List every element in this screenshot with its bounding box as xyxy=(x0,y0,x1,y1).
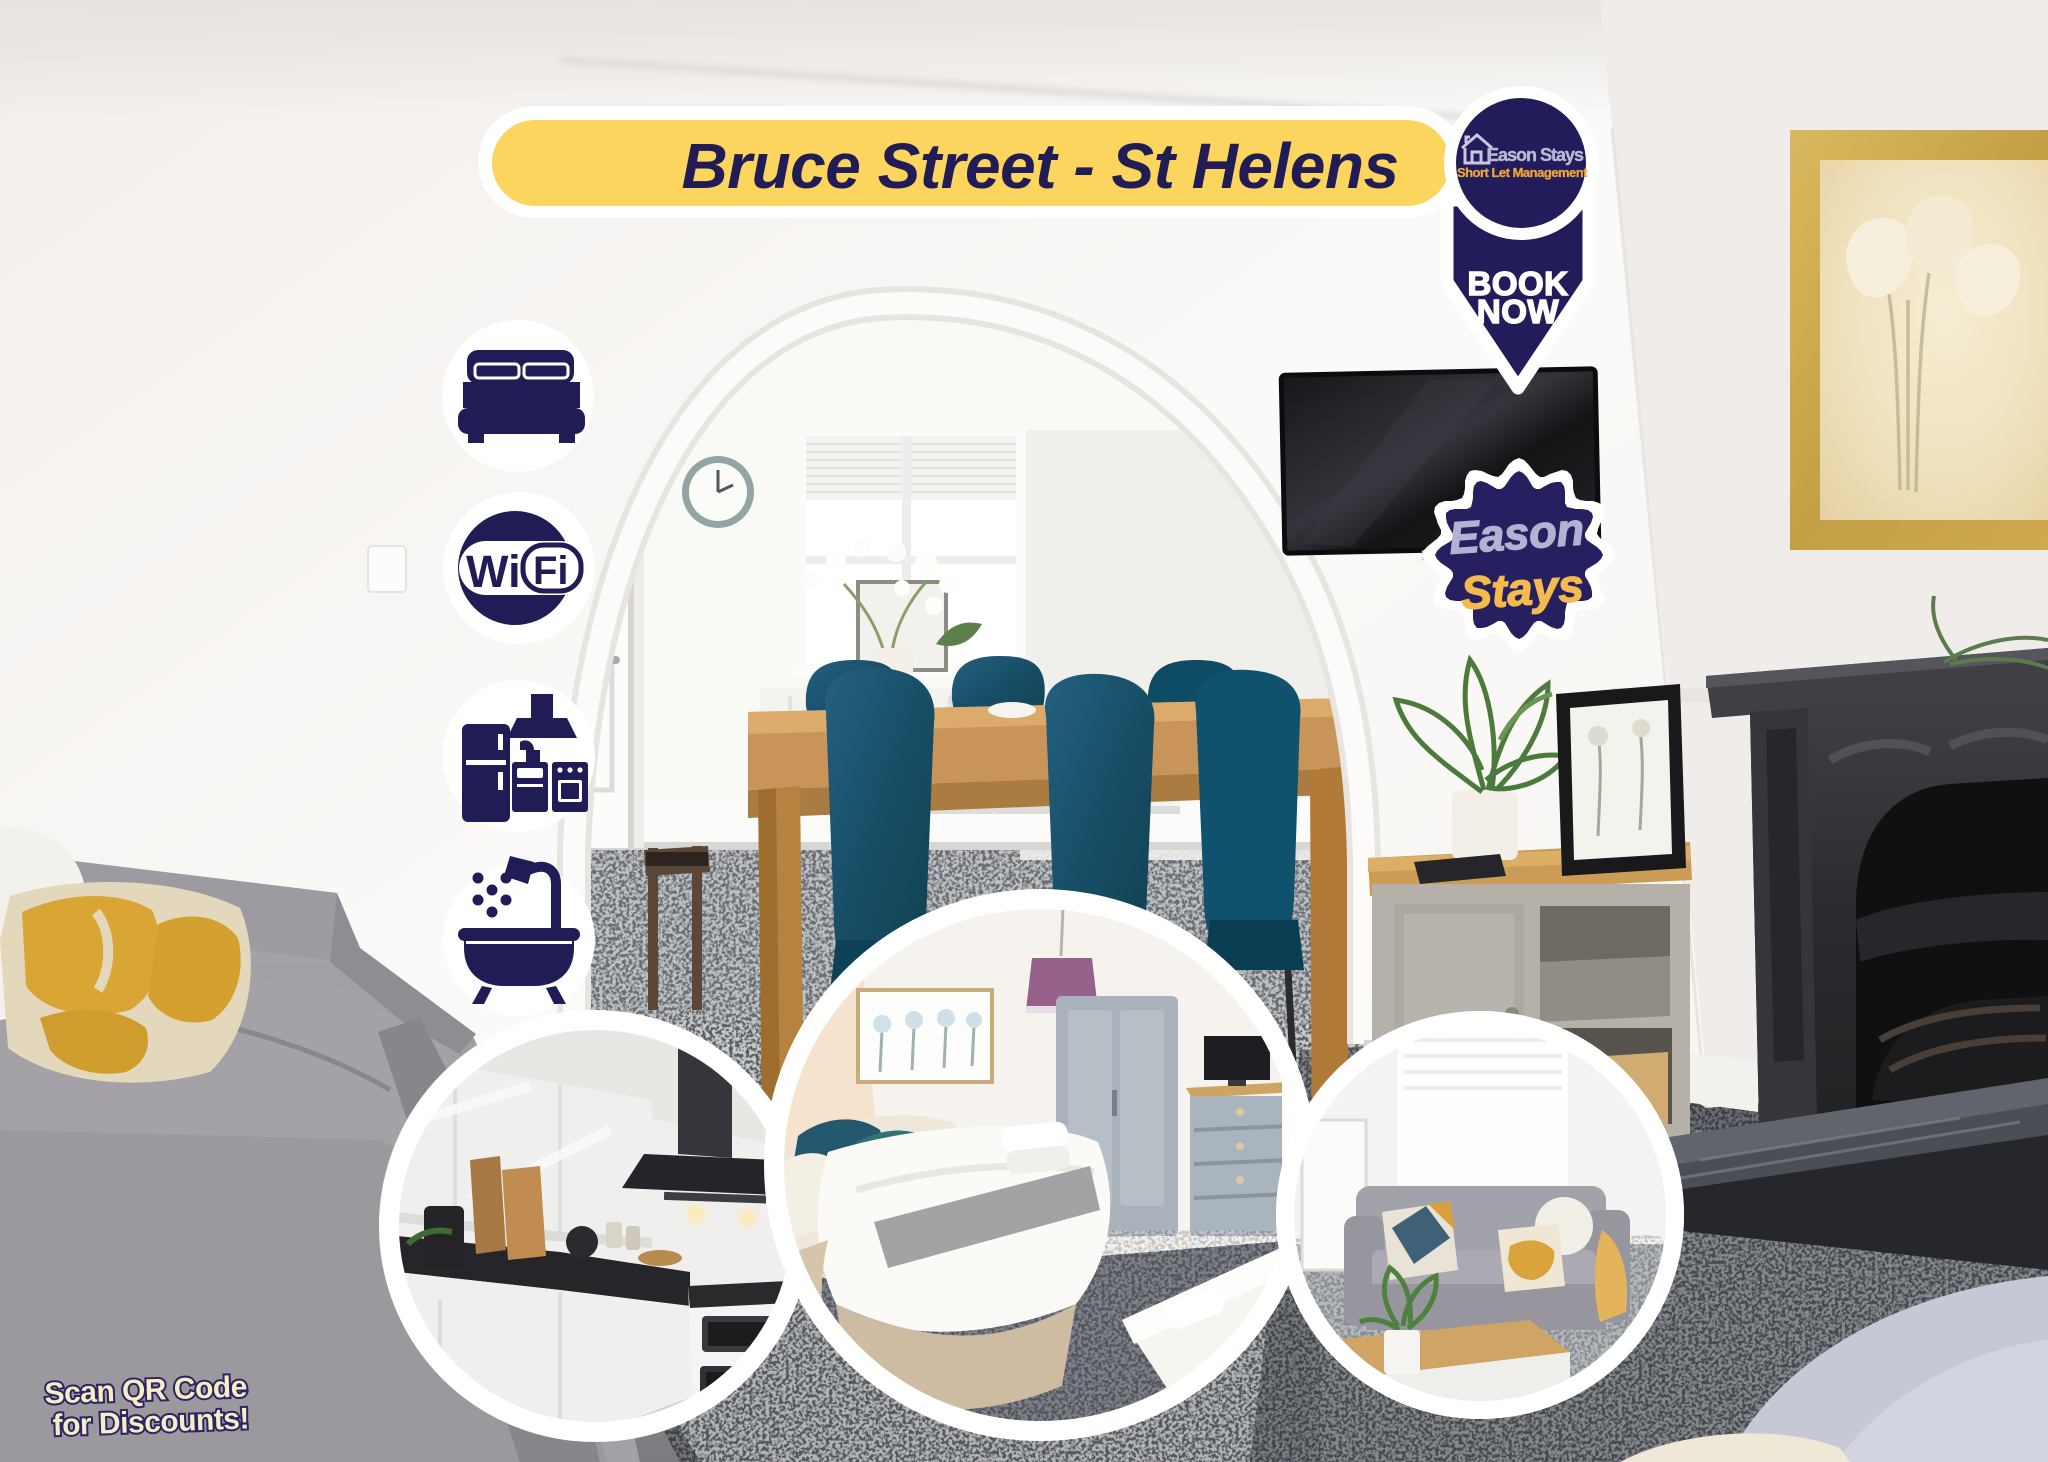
svg-text:Wi: Wi xyxy=(466,546,521,597)
svg-text:Fi: Fi xyxy=(533,549,569,593)
svg-text:Stays: Stays xyxy=(1459,559,1585,619)
svg-text:Bruce Street - St Helens: Bruce Street - St Helens xyxy=(681,130,1398,202)
svg-text:for Discounts!: for Discounts! xyxy=(52,1402,249,1442)
svg-text:Eason Stays: Eason Stays xyxy=(1487,145,1584,165)
svg-text:NOW: NOW xyxy=(1477,293,1560,330)
svg-text:Short Let Management: Short Let Management xyxy=(1457,165,1588,180)
svg-text:Eason: Eason xyxy=(1447,503,1585,563)
